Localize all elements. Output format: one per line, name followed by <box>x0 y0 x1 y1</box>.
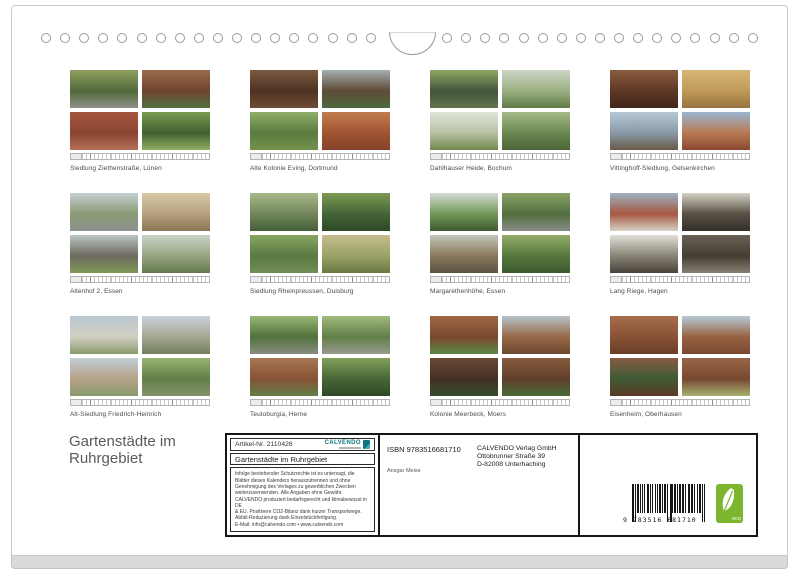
product-info-box: Artikel-Nr. 2110426 CALVENDO Gartenstädt… <box>225 433 758 537</box>
thumbnail-photo <box>610 235 678 273</box>
photo-collage <box>430 70 570 150</box>
photo-collage <box>70 316 210 396</box>
month-thumbnail: Margarethenhöhe, Essen <box>430 193 570 316</box>
eco-label: eco <box>716 484 743 523</box>
eco-label-text: eco <box>732 516 741 522</box>
binding-hole <box>576 33 586 43</box>
month-label-cell <box>71 277 82 282</box>
thumbnail-photo <box>70 70 138 108</box>
thumbnail-photo <box>610 316 678 354</box>
month-thumbnail: Siedlung Ziethenstraße, Lünen <box>70 70 210 193</box>
product-info-left-column: Artikel-Nr. 2110426 CALVENDO Gartenstädt… <box>227 435 380 535</box>
thumbnail-photo <box>250 70 318 108</box>
thumbnail-caption: Siedlung Rheinpreussen, Duisburg <box>250 288 390 295</box>
binding-hole <box>251 33 261 43</box>
thumbnail-caption: Margarethenhöhe, Essen <box>430 288 570 295</box>
thumbnail-photo <box>250 316 318 354</box>
binding-hole <box>289 33 299 43</box>
binding-hole <box>690 33 700 43</box>
binding-hole <box>748 33 758 43</box>
thumbnail-photo <box>142 70 210 108</box>
binding-hole <box>194 33 204 43</box>
month-label-cell <box>431 400 442 405</box>
month-label-cell <box>611 277 622 282</box>
calendar-date-strip <box>250 276 390 283</box>
binding-hole <box>595 33 605 43</box>
thumbnail-photo <box>322 235 390 273</box>
thumbnail-photo <box>682 316 750 354</box>
day-cells <box>82 277 209 282</box>
binding-hole <box>175 33 185 43</box>
month-label-cell <box>611 154 622 159</box>
binding-hole <box>270 33 280 43</box>
binding-hole <box>499 33 509 43</box>
thumbnail-photo <box>430 235 498 273</box>
thumbnail-caption: Eisenheim, Oberhausen <box>610 411 750 418</box>
thumbnail-caption: Lang Riege, Hagen <box>610 288 750 295</box>
thumbnail-photo <box>502 112 570 150</box>
barcode-digits: 9 783516 681710 <box>623 516 713 524</box>
thumbnail-photo <box>322 358 390 396</box>
photo-collage <box>430 193 570 273</box>
page-stack-edge <box>11 556 788 569</box>
day-cells <box>622 154 749 159</box>
thumbnail-photo <box>250 358 318 396</box>
thumbnail-photo <box>502 358 570 396</box>
thumbnail-caption: Kolonie Meerbeck, Moers <box>430 411 570 418</box>
thumbnail-caption: Vittinghoff-Siedlung, Gelsenkirchen <box>610 165 750 172</box>
thumbnail-photo <box>610 193 678 231</box>
binding-hole <box>41 33 51 43</box>
thumbnail-photo <box>250 112 318 150</box>
thumbnail-photo <box>70 235 138 273</box>
calendar-date-strip <box>610 399 750 406</box>
day-cells <box>82 400 209 405</box>
day-cells <box>622 277 749 282</box>
month-thumbnail: Lang Riege, Hagen <box>610 193 750 316</box>
article-number: Artikel-Nr. 2110426 <box>235 441 293 448</box>
binding-hole <box>328 33 338 43</box>
month-label-cell <box>611 400 622 405</box>
photo-collage <box>610 193 750 273</box>
thumbnail-photo <box>322 70 390 108</box>
photo-collage <box>430 316 570 396</box>
thumbnail-photo <box>250 235 318 273</box>
thumbnail-photo <box>142 358 210 396</box>
thumbnail-photo <box>70 358 138 396</box>
thumbnail-caption: Altenhof 2, Essen <box>70 288 210 295</box>
binding-hole <box>614 33 624 43</box>
thumbnail-photo <box>70 316 138 354</box>
thumbnail-caption: Teutoburgia, Herne <box>250 411 390 418</box>
photo-collage <box>610 316 750 396</box>
calvendo-logo-tagline <box>339 447 361 449</box>
thumbnail-photo <box>142 235 210 273</box>
calendar-date-strip <box>70 276 210 283</box>
binding-hole <box>347 33 357 43</box>
month-thumbnail: Dahlhauser Heide, Bochum <box>430 70 570 193</box>
product-title-box: Gartenstädte im Ruhrgebiet <box>230 453 375 465</box>
thumbnail-photo <box>682 70 750 108</box>
publisher-address: CALVENDO Verlag GmbH Ottobrunner Straße … <box>477 445 557 469</box>
photo-collage <box>610 70 750 150</box>
photo-collage <box>70 193 210 273</box>
month-label-cell <box>71 154 82 159</box>
binding-hole <box>137 33 147 43</box>
calvendo-logo: CALVENDO <box>325 440 370 449</box>
binding-hole <box>633 33 643 43</box>
binding-hole <box>710 33 720 43</box>
thumbnail-caption: Dahlhauser Heide, Bochum <box>430 165 570 172</box>
thumbnail-photo <box>322 193 390 231</box>
thumbnail-photo <box>502 235 570 273</box>
month-thumbnail: Eisenheim, Oberhausen <box>610 316 750 439</box>
month-thumbnails-grid: Siedlung Ziethenstraße, Lünen Alte Kolon… <box>70 70 750 439</box>
calendar-date-strip <box>610 153 750 160</box>
calendar-date-strip <box>430 399 570 406</box>
calendar-date-strip <box>430 276 570 283</box>
thumbnail-photo <box>322 316 390 354</box>
thumbnail-photo <box>610 358 678 396</box>
product-info-right-column: 9 783516 681710 eco <box>580 435 756 535</box>
binding-hole <box>156 33 166 43</box>
binding-hole <box>117 33 127 43</box>
legal-text: Infolge bestehender Schutzrechte ist es … <box>230 467 375 532</box>
month-label-cell <box>431 154 442 159</box>
binding-hole <box>538 33 548 43</box>
day-cells <box>442 154 569 159</box>
thumbnail-photo <box>610 70 678 108</box>
binding-hole <box>308 33 318 43</box>
month-thumbnail: Altenhof 2, Essen <box>70 193 210 316</box>
calendar-date-strip <box>430 153 570 160</box>
month-label-cell <box>431 277 442 282</box>
thumbnail-photo <box>682 193 750 231</box>
thumbnail-photo <box>430 112 498 150</box>
calendar-date-strip <box>70 399 210 406</box>
leaf-icon <box>718 486 738 516</box>
calendar-back-cover: Siedlung Ziethenstraße, Lünen Alte Kolon… <box>0 0 800 577</box>
month-thumbnail: Vittinghoff-Siedlung, Gelsenkirchen <box>610 70 750 193</box>
thumbnail-photo <box>610 112 678 150</box>
ean-barcode: 9 783516 681710 <box>632 484 708 522</box>
product-title: Gartenstädte im Ruhrgebiet <box>235 455 327 464</box>
thumbnail-photo <box>250 193 318 231</box>
thumbnail-caption: Alt-Siedlung Friedrich-Heinrich <box>70 411 210 418</box>
day-cells <box>442 400 569 405</box>
calendar-title: Gartenstädte im Ruhrgebiet <box>69 434 176 467</box>
thumbnail-photo <box>502 193 570 231</box>
month-thumbnail: Teutoburgia, Herne <box>250 316 390 439</box>
binding-hole <box>98 33 108 43</box>
month-thumbnail: Kolonie Meerbeck, Moers <box>430 316 570 439</box>
photo-collage <box>70 70 210 150</box>
thumbnail-photo <box>142 316 210 354</box>
thumbnail-photo <box>322 112 390 150</box>
binding-hole <box>480 33 490 43</box>
thumbnail-caption: Siedlung Ziethenstraße, Lünen <box>70 165 210 172</box>
thumbnail-photo <box>430 70 498 108</box>
thumbnail-photo <box>142 112 210 150</box>
binding-hole <box>213 33 223 43</box>
thumbnail-photo <box>70 112 138 150</box>
day-cells <box>262 154 389 159</box>
day-cells <box>442 277 569 282</box>
product-info-middle-column: ISBN 9783516681710 CALVENDO Verlag GmbH … <box>380 435 580 535</box>
thumbnail-photo <box>502 70 570 108</box>
article-number-box: Artikel-Nr. 2110426 CALVENDO <box>230 438 375 451</box>
calendar-back-sheet: Siedlung Ziethenstraße, Lünen Alte Kolon… <box>11 5 788 556</box>
calendar-date-strip <box>250 399 390 406</box>
calendar-date-strip <box>250 153 390 160</box>
isbn-number: ISBN 9783516681710 <box>387 445 461 454</box>
binding-hole <box>652 33 662 43</box>
hanger-notch <box>389 32 436 55</box>
month-label-cell <box>71 400 82 405</box>
binding-hole <box>671 33 681 43</box>
month-label-cell <box>251 400 262 405</box>
day-cells <box>82 154 209 159</box>
calendar-date-strip <box>70 153 210 160</box>
binding-hole <box>442 33 452 43</box>
binding-hole <box>729 33 739 43</box>
month-label-cell <box>251 154 262 159</box>
month-thumbnail: Siedlung Rheinpreussen, Duisburg <box>250 193 390 316</box>
photo-collage <box>250 316 390 396</box>
month-label-cell <box>251 277 262 282</box>
month-thumbnail: Alte Kolonie Eving, Dortmund <box>250 70 390 193</box>
binding-hole <box>232 33 242 43</box>
thumbnail-photo <box>70 193 138 231</box>
binding-hole <box>557 33 567 43</box>
binding-hole <box>79 33 89 43</box>
thumbnail-photo <box>682 235 750 273</box>
binding-hole <box>519 33 529 43</box>
day-cells <box>262 400 389 405</box>
binding-hole <box>461 33 471 43</box>
month-thumbnail: Alt-Siedlung Friedrich-Heinrich <box>70 316 210 439</box>
day-cells <box>622 400 749 405</box>
calendar-date-strip <box>610 276 750 283</box>
thumbnail-photo <box>682 112 750 150</box>
binding-hole <box>60 33 70 43</box>
thumbnail-photo <box>430 193 498 231</box>
author-name: Ansgar Meise <box>387 468 421 474</box>
calvendo-wordmark: CALVENDO <box>325 440 361 449</box>
thumbnail-photo <box>430 316 498 354</box>
calvendo-logo-text: CALVENDO <box>325 440 361 446</box>
binding-hole <box>366 33 376 43</box>
thumbnail-photo <box>142 193 210 231</box>
photo-collage <box>250 193 390 273</box>
thumbnail-caption: Alte Kolonie Eving, Dortmund <box>250 165 390 172</box>
thumbnail-photo <box>430 358 498 396</box>
thumbnail-photo <box>502 316 570 354</box>
day-cells <box>262 277 389 282</box>
calvendo-logo-icon <box>363 440 370 449</box>
thumbnail-photo <box>682 358 750 396</box>
photo-collage <box>250 70 390 150</box>
